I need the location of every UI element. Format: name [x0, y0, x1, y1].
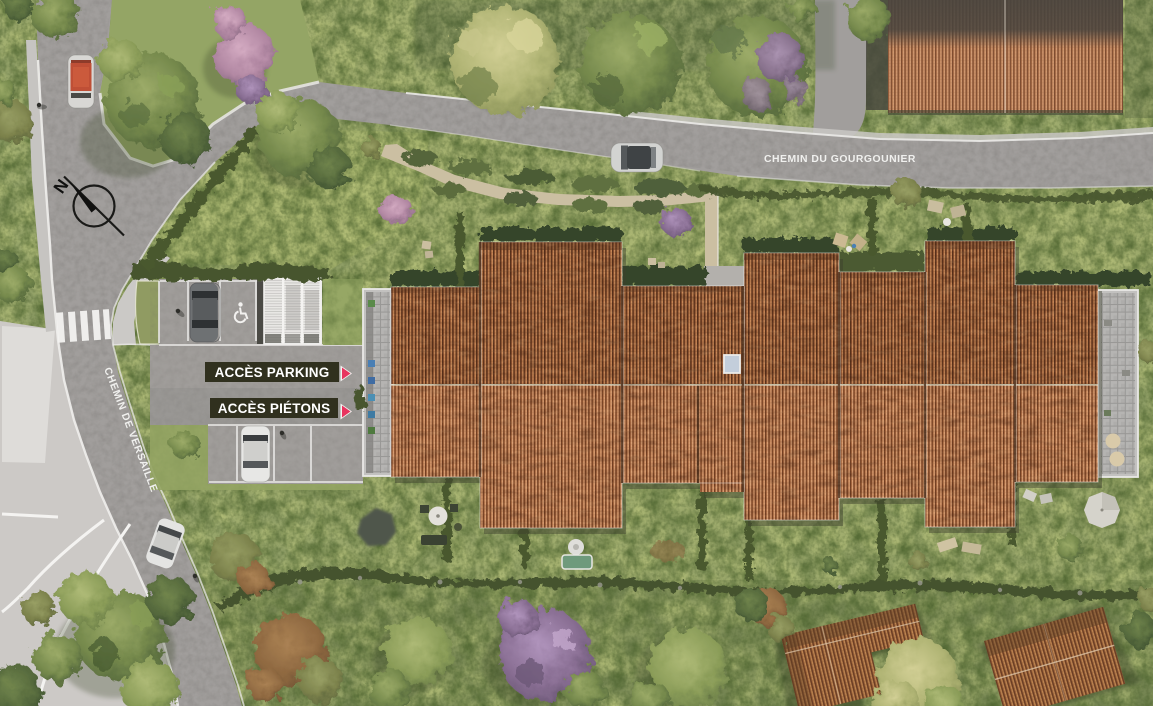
svg-text:CHEMIN DU GOURGOUNIER: CHEMIN DU GOURGOUNIER — [764, 154, 916, 165]
svg-text:ACCÈS PARKING: ACCÈS PARKING — [215, 365, 330, 380]
svg-text:ACCÈS PIÉTONS: ACCÈS PIÉTONS — [218, 401, 331, 416]
